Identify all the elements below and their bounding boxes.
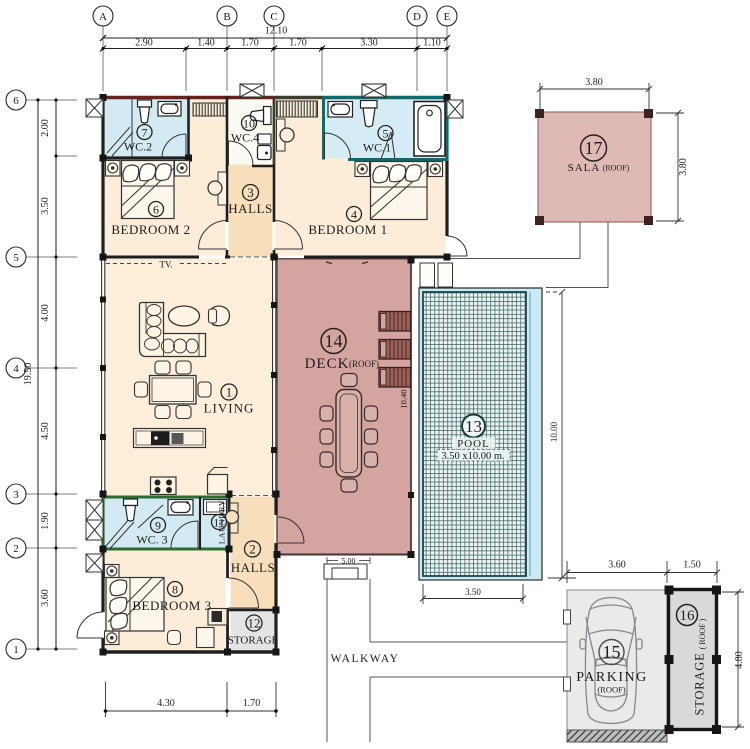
svg-text:STORAGE: STORAGE bbox=[228, 635, 279, 647]
svg-text:1.70: 1.70 bbox=[243, 698, 261, 709]
svg-text:1: 1 bbox=[226, 385, 233, 400]
svg-text:E: E bbox=[444, 11, 451, 23]
svg-text:WC.4: WC.4 bbox=[231, 131, 259, 145]
svg-text:6: 6 bbox=[13, 95, 19, 107]
svg-text:12: 12 bbox=[248, 616, 261, 631]
svg-text:DECK: DECK bbox=[305, 356, 350, 372]
svg-text:3.60: 3.60 bbox=[40, 589, 51, 607]
svg-text:19.50: 19.50 bbox=[23, 363, 34, 386]
svg-text:5.00: 5.00 bbox=[342, 557, 356, 566]
svg-text:3: 3 bbox=[13, 489, 19, 501]
svg-text:( ROOF ): ( ROOF ) bbox=[698, 618, 707, 649]
svg-text:2: 2 bbox=[249, 542, 256, 557]
svg-text:3.30: 3.30 bbox=[360, 38, 378, 49]
svg-text:A: A bbox=[99, 11, 107, 23]
svg-text:10.40: 10.40 bbox=[399, 389, 409, 408]
svg-text:LAUNDRY: LAUNDRY bbox=[217, 500, 227, 545]
svg-text:13: 13 bbox=[465, 417, 482, 436]
svg-text:HALLS: HALLS bbox=[231, 560, 275, 575]
svg-text:B: B bbox=[223, 11, 230, 23]
svg-text:D: D bbox=[413, 11, 421, 23]
svg-text:4.30: 4.30 bbox=[157, 698, 175, 709]
svg-text:5: 5 bbox=[13, 252, 19, 264]
svg-text:2.00: 2.00 bbox=[40, 119, 51, 137]
svg-text:TV.: TV. bbox=[159, 260, 172, 270]
svg-text:3: 3 bbox=[247, 185, 254, 200]
svg-text:9: 9 bbox=[155, 519, 161, 533]
svg-text:1.10: 1.10 bbox=[423, 38, 441, 49]
svg-text:12.10: 12.10 bbox=[265, 26, 288, 37]
svg-text:4.50: 4.50 bbox=[40, 422, 51, 440]
svg-text:16: 16 bbox=[680, 608, 696, 624]
svg-text:1.40: 1.40 bbox=[197, 38, 215, 49]
svg-text:WC.1: WC.1 bbox=[363, 141, 391, 155]
svg-text:3.50: 3.50 bbox=[465, 587, 481, 597]
svg-text:2.90: 2.90 bbox=[135, 38, 153, 49]
svg-text:3.80: 3.80 bbox=[678, 158, 689, 176]
svg-text:3.80: 3.80 bbox=[585, 77, 603, 88]
svg-text:WALKWAY: WALKWAY bbox=[331, 653, 400, 665]
svg-text:10: 10 bbox=[243, 117, 255, 131]
svg-text:LIVING: LIVING bbox=[204, 401, 255, 416]
svg-text:4.00: 4.00 bbox=[40, 304, 51, 322]
svg-text:PARKING: PARKING bbox=[576, 670, 647, 685]
svg-text:2: 2 bbox=[13, 543, 19, 555]
svg-text:WC. 3: WC. 3 bbox=[136, 533, 167, 547]
svg-text:1.90: 1.90 bbox=[40, 512, 51, 530]
svg-text:BEDROOM 2: BEDROOM 2 bbox=[111, 222, 190, 237]
svg-text:(ROOF): (ROOF) bbox=[597, 685, 626, 695]
svg-text:1.50: 1.50 bbox=[683, 560, 701, 571]
svg-text:5: 5 bbox=[383, 127, 389, 141]
svg-text:SALA: SALA bbox=[568, 162, 601, 174]
svg-text:15: 15 bbox=[603, 642, 621, 662]
svg-text:4: 4 bbox=[351, 208, 357, 222]
svg-text:4: 4 bbox=[13, 363, 19, 375]
svg-text:(ROOF): (ROOF) bbox=[349, 359, 379, 369]
svg-text:BEDROOM 3: BEDROOM 3 bbox=[132, 598, 211, 613]
svg-text:14: 14 bbox=[325, 331, 343, 351]
svg-text:1: 1 bbox=[13, 644, 19, 656]
svg-text:3.50: 3.50 bbox=[40, 197, 51, 215]
svg-text:C: C bbox=[270, 11, 277, 23]
svg-text:1.70: 1.70 bbox=[289, 38, 307, 49]
svg-text:7: 7 bbox=[142, 126, 148, 140]
svg-text:1.70: 1.70 bbox=[241, 38, 259, 49]
svg-text:8: 8 bbox=[172, 583, 178, 597]
svg-text:STORAGE: STORAGE bbox=[693, 652, 707, 715]
svg-text:HALLS: HALLS bbox=[228, 201, 272, 216]
svg-text:POOL: POOL bbox=[457, 438, 490, 450]
svg-text:10.00: 10.00 bbox=[549, 421, 559, 442]
svg-text:WC.2: WC.2 bbox=[124, 140, 152, 154]
svg-text:6: 6 bbox=[153, 203, 159, 217]
svg-text:(ROOF): (ROOF) bbox=[603, 164, 630, 173]
svg-text:17: 17 bbox=[585, 138, 603, 158]
svg-text:3.60: 3.60 bbox=[608, 560, 626, 571]
svg-text:BEDROOM 1: BEDROOM 1 bbox=[308, 222, 387, 237]
svg-text:4.80: 4.80 bbox=[734, 651, 745, 669]
svg-text:3.50 x10.00 m.: 3.50 x10.00 m. bbox=[441, 451, 504, 462]
